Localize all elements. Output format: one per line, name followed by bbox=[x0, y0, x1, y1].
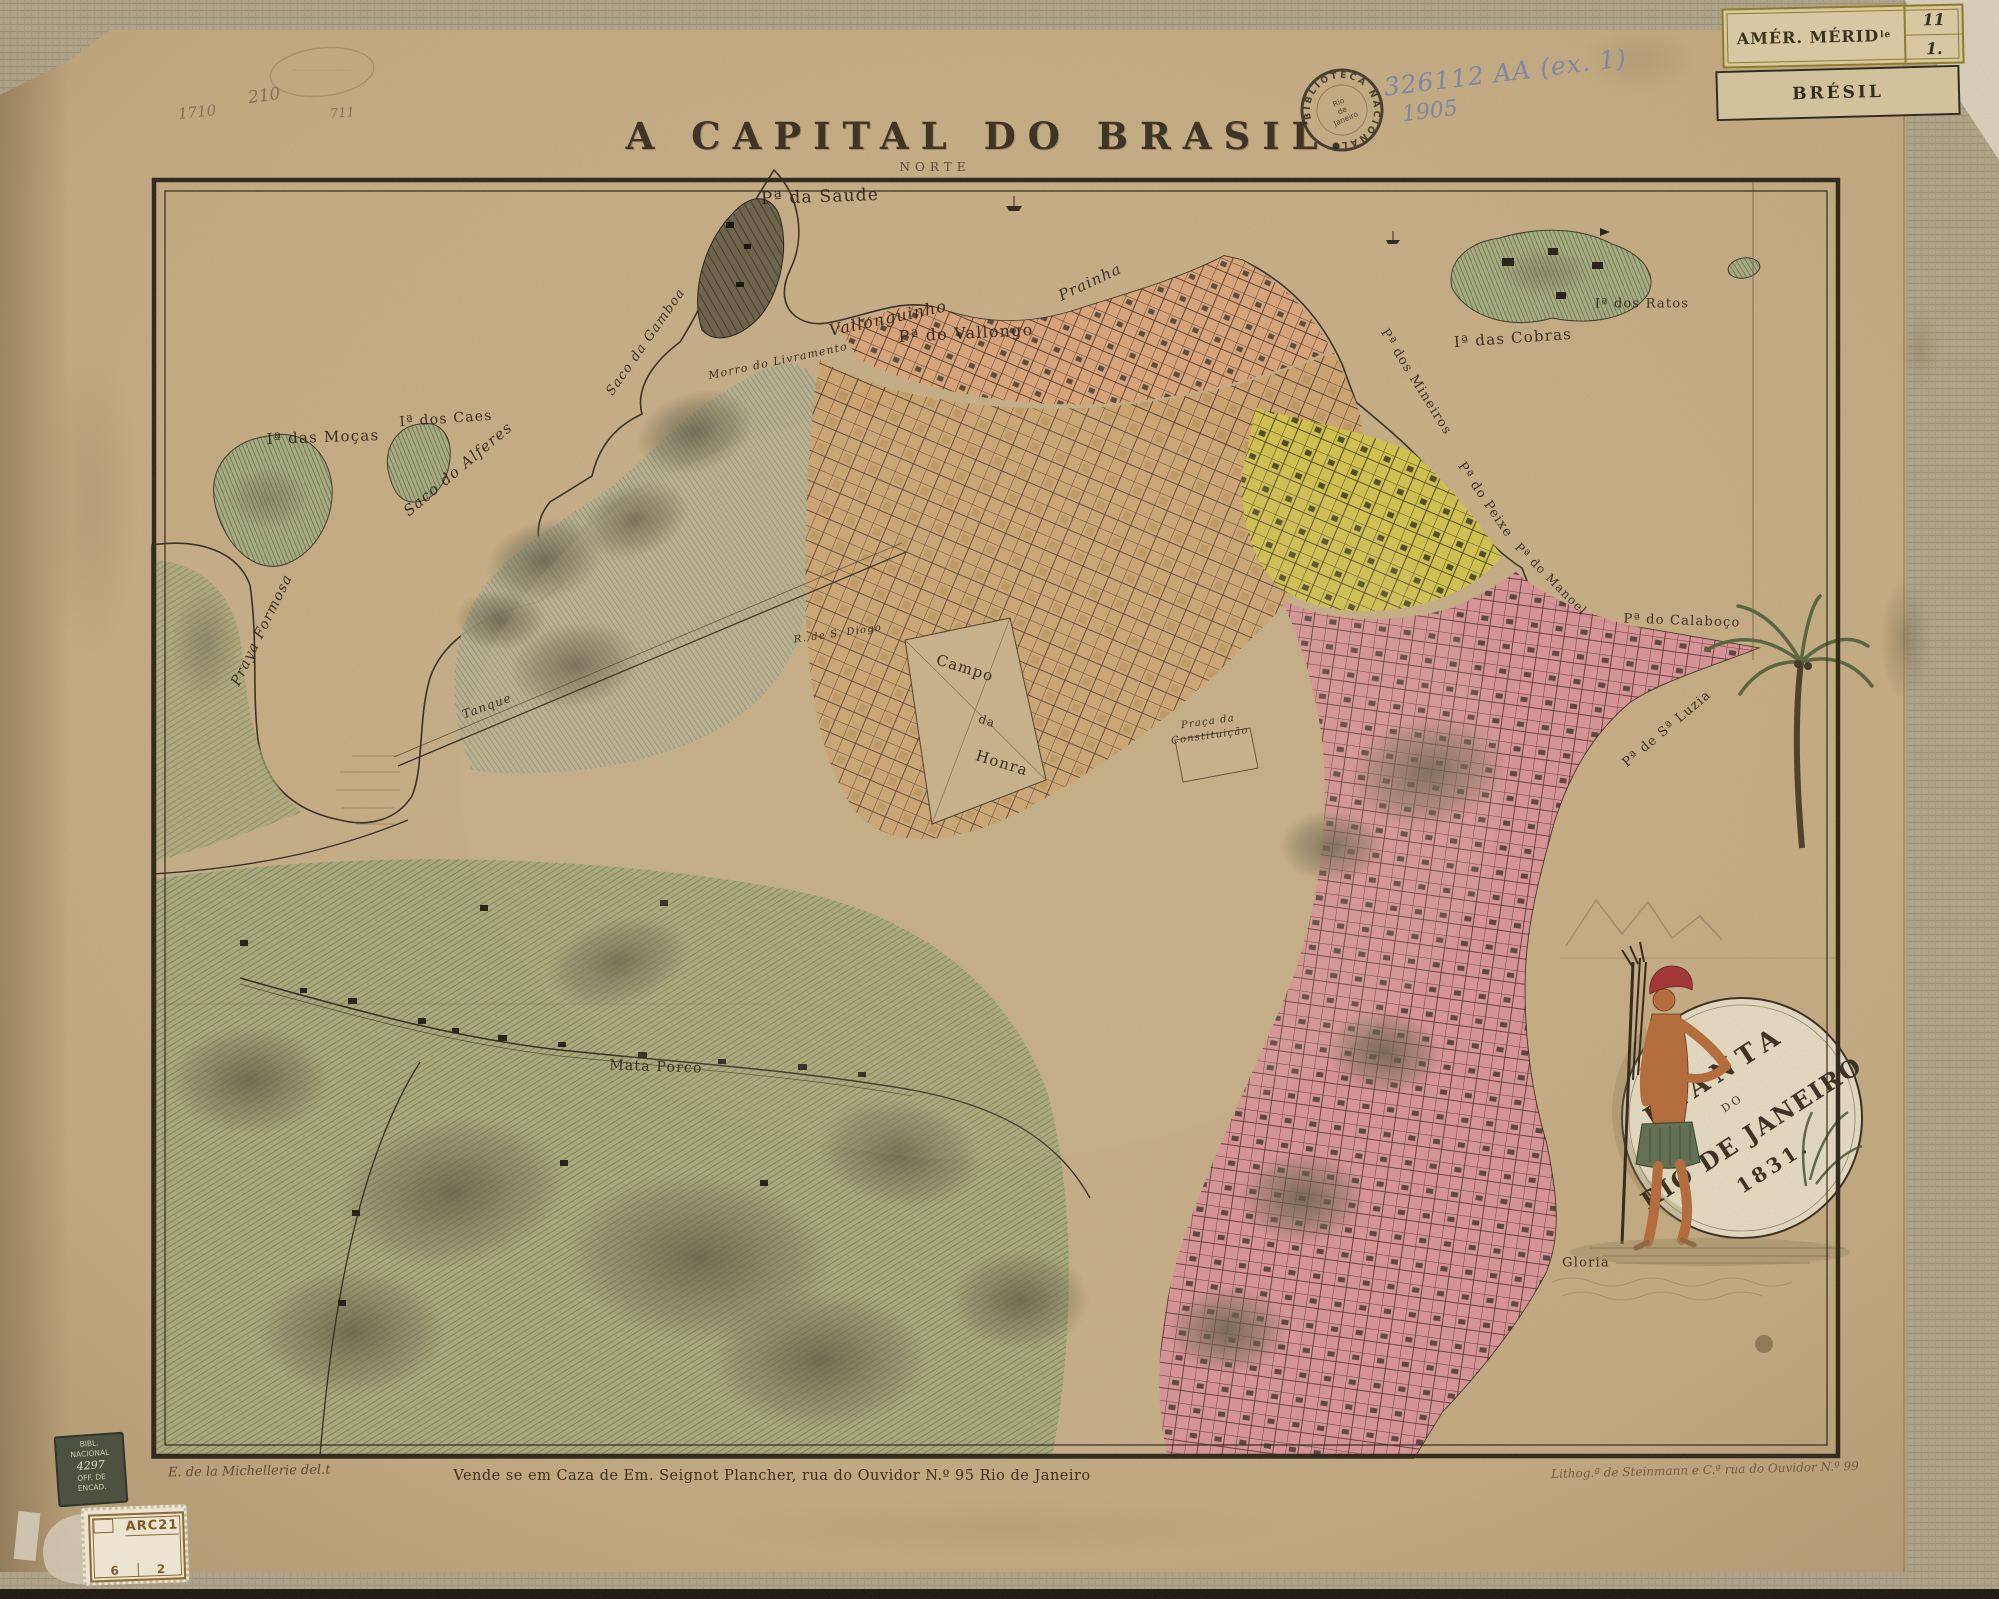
map-title: A CAPITAL DO BRASIL. bbox=[626, 114, 1355, 158]
map-label: Campo bbox=[934, 651, 996, 686]
map-label: Pª do Vallongo bbox=[898, 320, 1034, 346]
shelf-label-country: BRÉSIL bbox=[1715, 65, 1960, 121]
shelf-number-bottom: 1. bbox=[1906, 33, 1963, 63]
shelf-label-region: AMÉR. MÉRIDle 11 1. bbox=[1721, 3, 1964, 68]
map-label: Iª dos Ratos bbox=[1595, 297, 1689, 312]
map-label: R. de S. Diogo bbox=[793, 622, 882, 645]
archive-stamp: ARC21 6 2 bbox=[81, 1504, 190, 1586]
map-label: Honra bbox=[974, 747, 1031, 780]
archive-stamp-code: ARC21 bbox=[125, 1517, 178, 1536]
map-labels-layer: Pª da SaudeVallonguinhoPª do VallongoPra… bbox=[0, 0, 1999, 1599]
map-label: Iª das Moças bbox=[266, 426, 379, 448]
map-label: Pª dos Mineiros bbox=[1377, 326, 1455, 438]
map-label: Praya Formosa bbox=[228, 572, 296, 689]
compass-label: NORTE bbox=[900, 160, 971, 174]
shelf-number-top: 11 bbox=[1905, 6, 1962, 35]
map-label: da bbox=[977, 712, 998, 730]
map-label: Iª das Cobras bbox=[1453, 325, 1572, 351]
map-label: Tanque bbox=[460, 691, 513, 722]
map-label: Morro do Livramento bbox=[707, 340, 849, 382]
shelf-region-sup: le bbox=[1880, 30, 1891, 40]
binder-label: BIBL. NACIONAL 4297 OFF. DE ENCAD. bbox=[54, 1432, 129, 1508]
map-label: Gloria bbox=[1562, 1256, 1610, 1271]
shelf-region-text: AMÉR. MÉRID bbox=[1737, 26, 1880, 48]
map-label: Saco do Alferes bbox=[400, 418, 516, 520]
map-label: Mata Porco bbox=[609, 1057, 703, 1076]
map-label: Pª de Sª Luzia bbox=[1620, 688, 1715, 771]
map-label: Prainha bbox=[1056, 260, 1125, 305]
archive-stamp-box bbox=[93, 1519, 113, 1534]
archive-stamp-right: 2 bbox=[137, 1561, 184, 1577]
country-label-text: BRÉSIL bbox=[1792, 82, 1884, 104]
map-label: Pª do Manoel bbox=[1512, 540, 1590, 618]
pencil-note-3: 711 bbox=[330, 105, 356, 122]
imprint-artist: E. de la Michellerie del.t bbox=[168, 1463, 331, 1481]
map-label: Pª do Peixe bbox=[1454, 460, 1515, 541]
map-label: Iª dos Caes bbox=[399, 408, 493, 430]
map-label: Pª do Calaboço bbox=[1623, 611, 1740, 630]
scanned-map-page: { "title_block": { "title": "A CAPITAL D… bbox=[0, 0, 1999, 1599]
archive-stamp-left: 6 bbox=[92, 1563, 138, 1579]
map-label: Pª da Saude bbox=[761, 185, 880, 209]
imprint-publisher: Vende se em Caza de Em. Seignot Plancher… bbox=[453, 1468, 1090, 1484]
map-label: Saco da Gamboa bbox=[603, 286, 688, 399]
